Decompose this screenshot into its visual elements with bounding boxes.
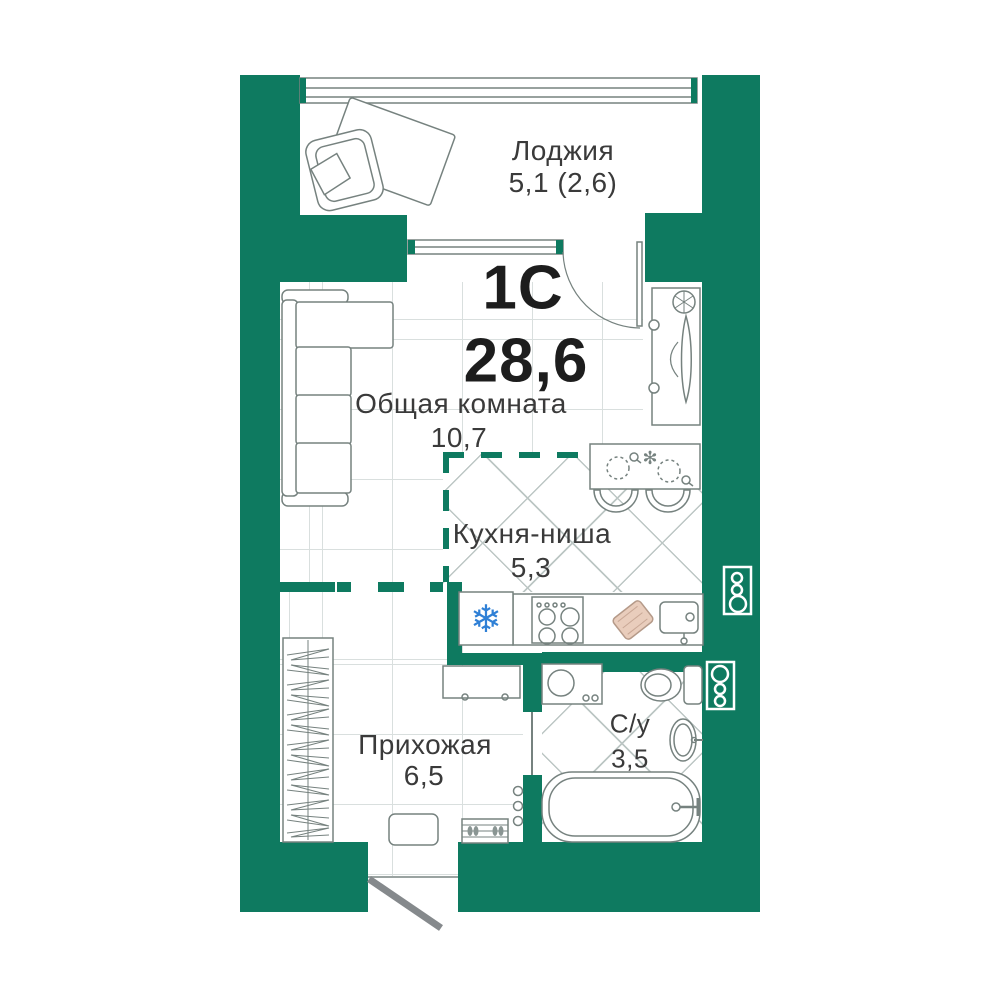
bathroom-sink <box>670 719 703 761</box>
loggia-area: 5,1 (2,6) <box>509 167 618 199</box>
floor-plan: ✻ ❄ <box>0 0 1000 1000</box>
balcony-door <box>563 242 642 328</box>
hallway-rug <box>389 814 438 845</box>
hallway-wardrobe <box>283 638 333 842</box>
snowflake-icon: ❄ <box>470 597 502 641</box>
svg-text:✻: ✻ <box>642 448 657 469</box>
bathroom-label: С/у <box>610 709 651 740</box>
dining-table: ✻ <box>590 444 700 489</box>
living-room-area: 10,7 <box>431 422 488 454</box>
vent-shaft-icon-upper <box>724 567 751 614</box>
stove <box>532 597 583 644</box>
kitchen-area: 5,3 <box>511 552 551 584</box>
furniture-layer: ✻ ❄ <box>0 0 1000 1000</box>
fridge: ❄ <box>459 592 513 645</box>
coat-hooks <box>514 787 523 826</box>
loggia-window <box>300 78 697 103</box>
vent-shaft-icon-lower <box>707 662 734 709</box>
entrance-door <box>368 877 458 928</box>
shoe-rack <box>462 819 508 843</box>
dining-chairs <box>594 490 690 512</box>
loggia-label: Лоджия <box>512 135 614 167</box>
toilet <box>641 666 702 704</box>
washing-machine <box>542 664 602 704</box>
bathtub <box>542 772 700 842</box>
living-room-label: Общая комната <box>355 388 567 420</box>
hallway-label: Прихожая <box>358 729 492 761</box>
bathroom-area: 3,5 <box>611 744 649 775</box>
total-area-label: 28,6 <box>464 326 589 397</box>
hallway-area: 6,5 <box>404 760 444 792</box>
unit-type-label: 1С <box>482 253 563 324</box>
kitchen-label: Кухня-ниша <box>453 518 611 550</box>
wardrobe <box>649 288 700 425</box>
hallway-bench <box>443 666 520 700</box>
